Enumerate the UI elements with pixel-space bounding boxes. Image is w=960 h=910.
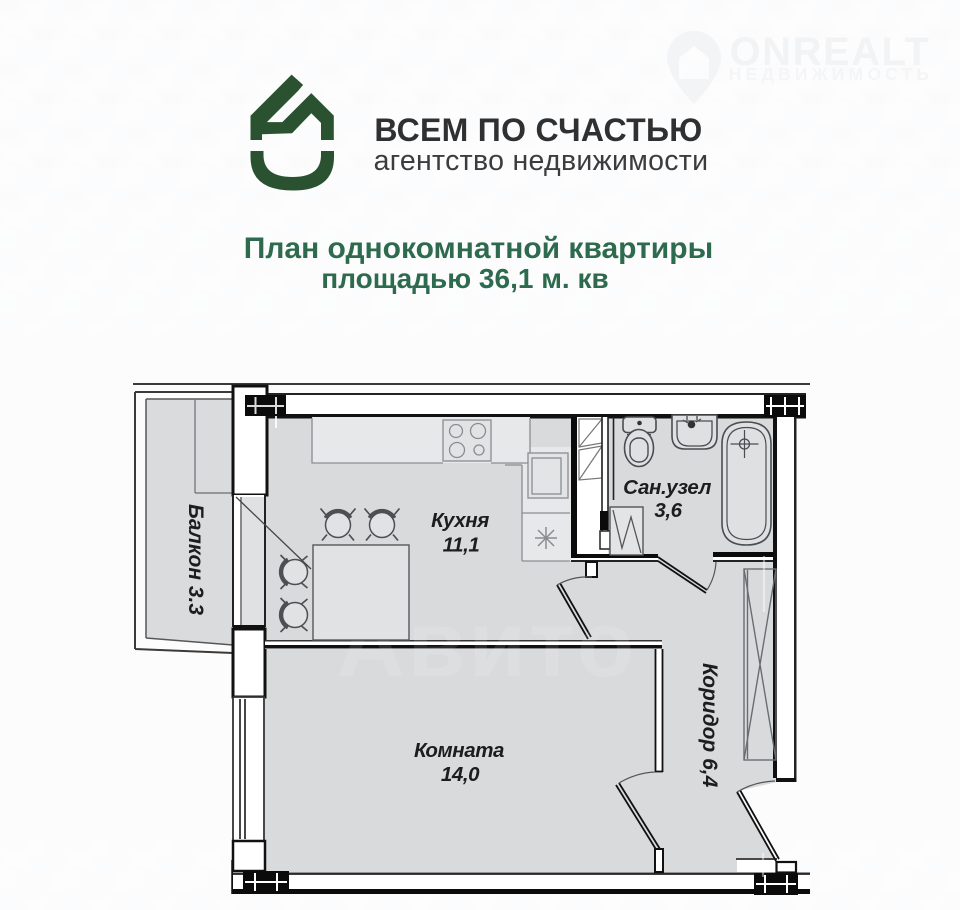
svg-text:14,0: 14,0 [441,763,480,786]
svg-text:3,6: 3,6 [654,499,682,522]
svg-text:площадью 36,1 м. кв: площадью 36,1 м. кв [321,263,608,294]
svg-text:Комната: Комната [414,739,504,762]
svg-text:План однокомнатной квартиры: План однокомнатной квартиры [244,232,713,265]
svg-text:ВСЕМ ПО СЧАСТЬЮ: ВСЕМ ПО СЧАСТЬЮ [374,112,702,148]
svg-text:Кухня: Кухня [431,509,489,532]
svg-text:Сан.узел: Сан.узел [623,476,711,499]
svg-text:Балкон 3.3: Балкон 3.3 [184,504,207,615]
svg-text:агентство недвижимости: агентство недвижимости [374,145,709,177]
svg-text:11,1: 11,1 [443,534,480,557]
svg-text:Коридор 6,4: Коридор 6,4 [698,663,721,788]
svg-text:НЕДВИЖИМОСТЬ: НЕДВИЖИМОСТЬ [729,64,933,84]
